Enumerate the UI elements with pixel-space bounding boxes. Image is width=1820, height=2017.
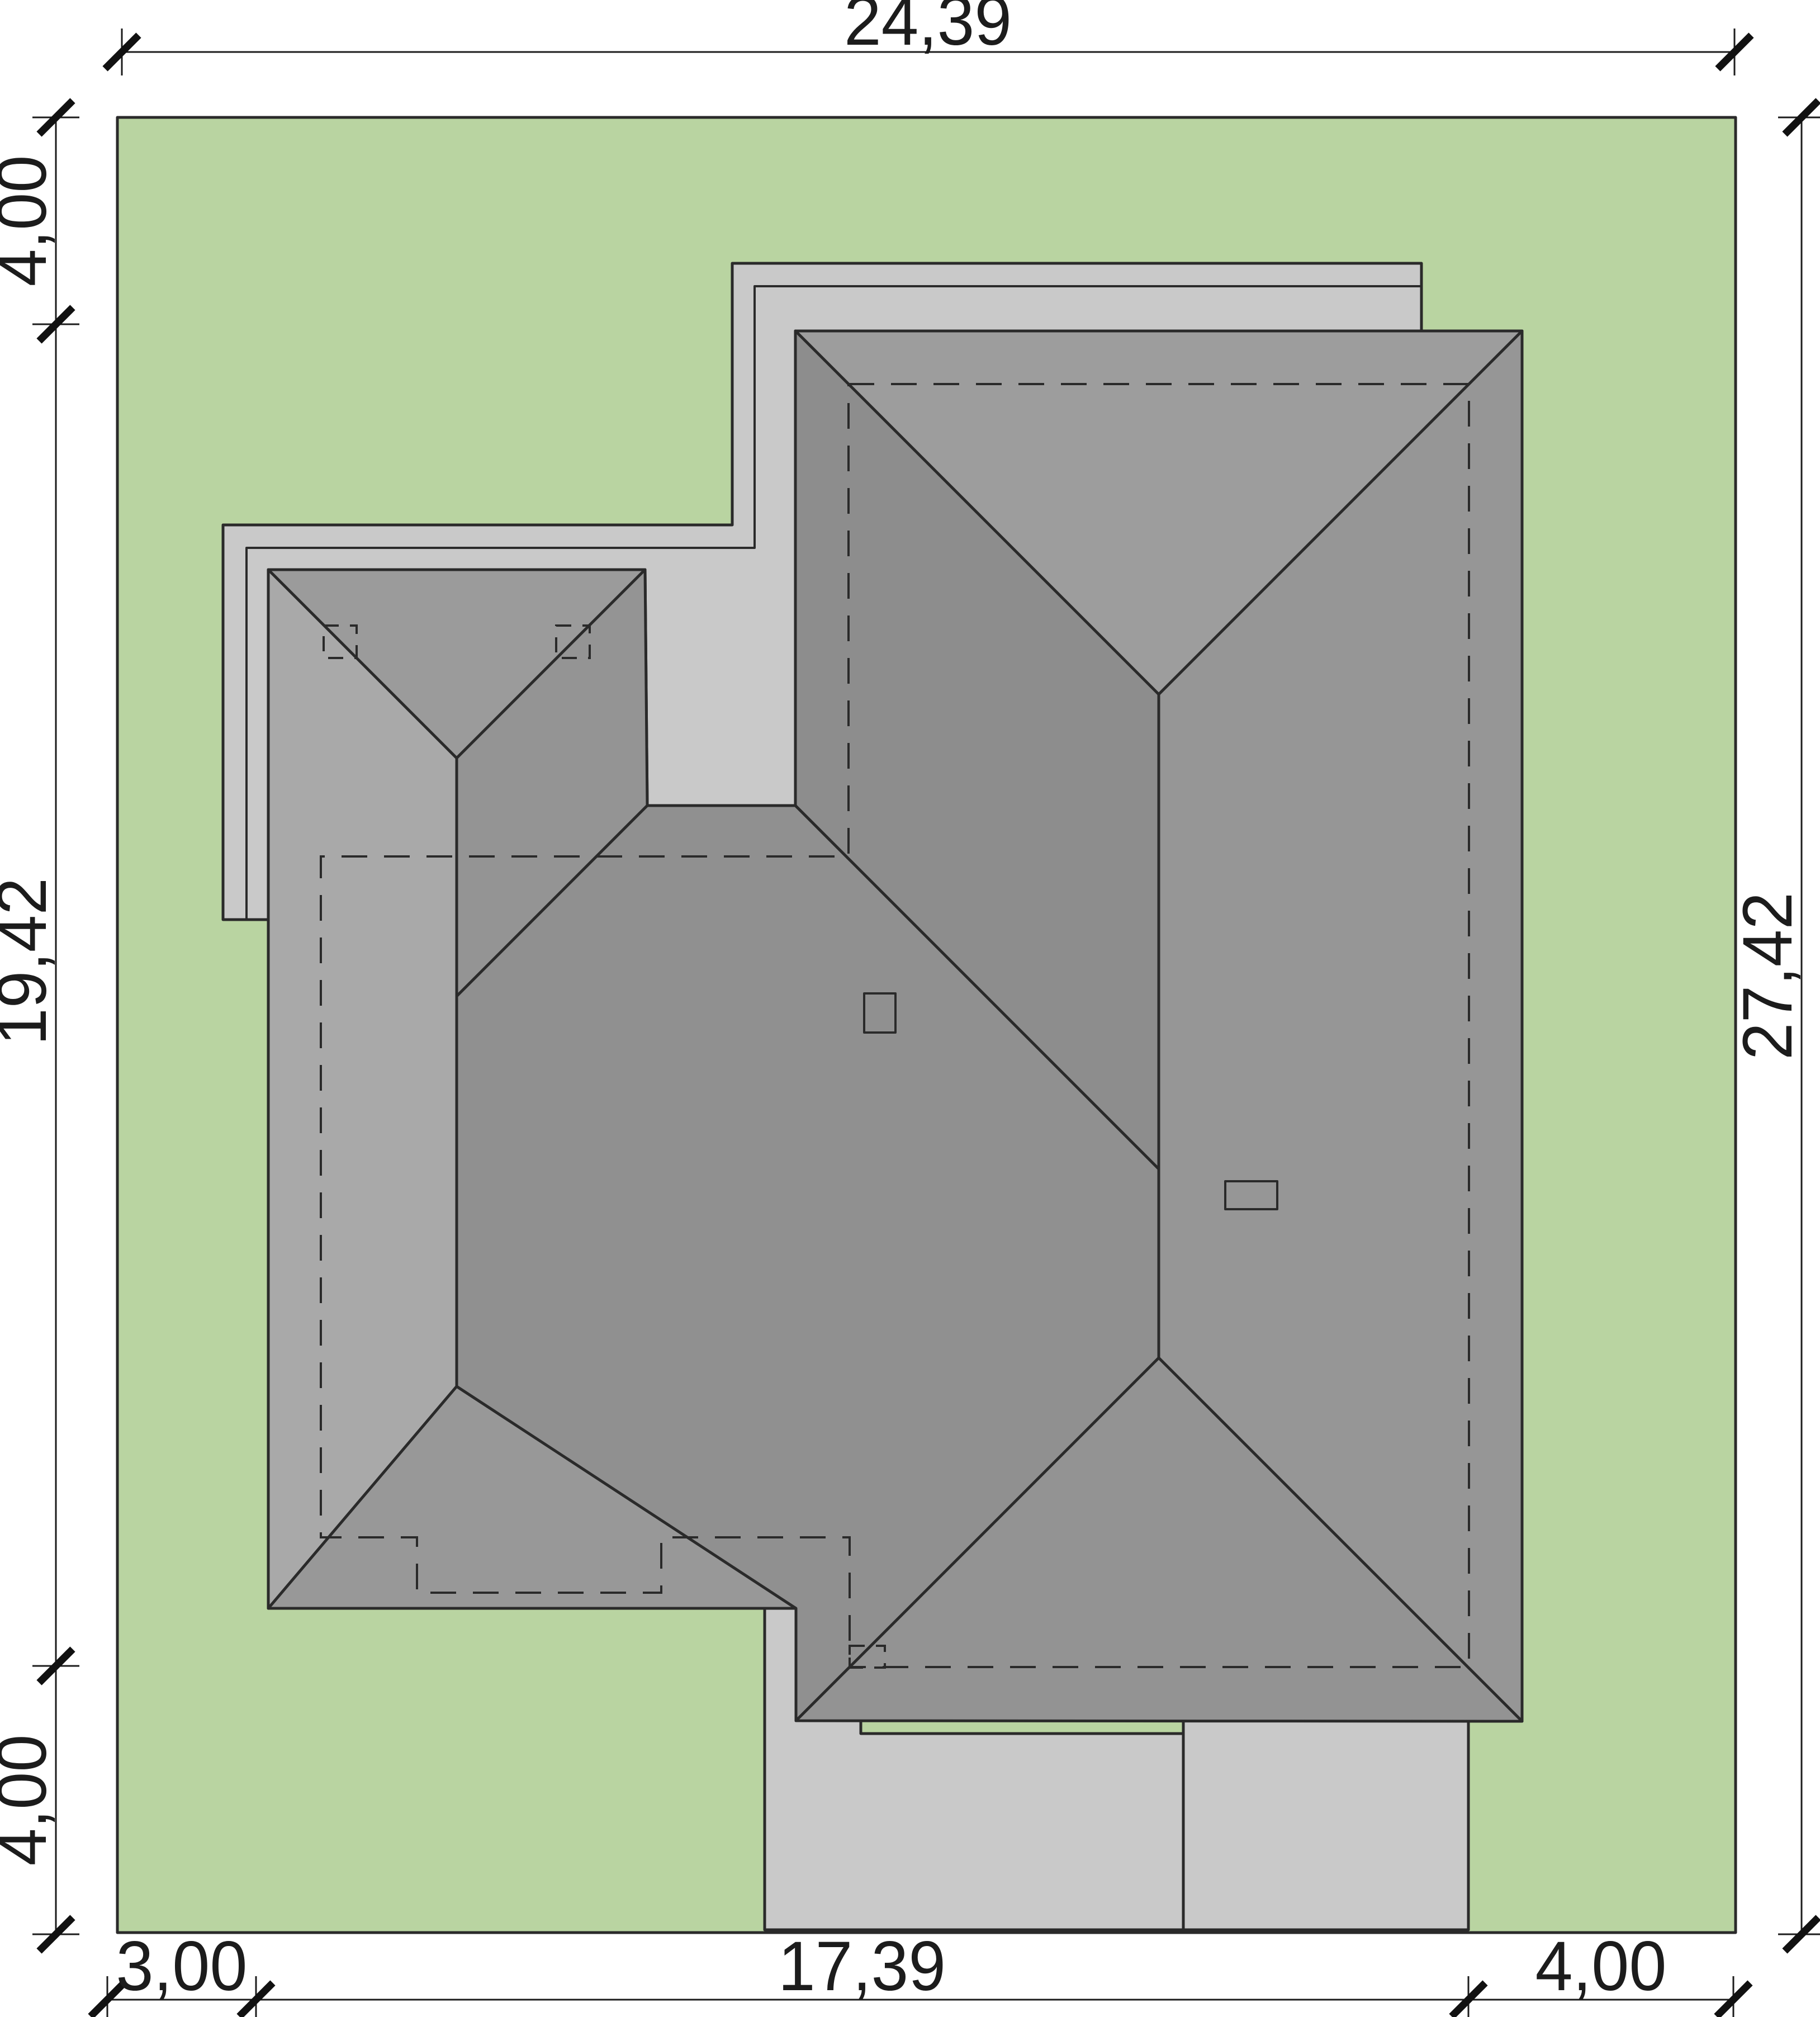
dim-label-left-house-depth: 19,42 [0,878,61,1045]
dimension-tick [1717,1976,1750,2017]
dimension-right: 27,42 [1729,101,1820,1951]
dim-label-bottom-house-width: 17,39 [778,1928,946,2005]
dim-label-bottom-setback-left: 3,00 [116,1928,248,2005]
dim-label-right-plot-depth: 27,42 [1729,892,1807,1060]
dimension-left: 4,00 19,42 4,00 [0,101,79,1951]
dimension-tick [1778,1917,1820,1951]
dimension-top: 24,39 [105,0,1751,75]
dimension-bottom: 3,00 17,39 4,00 [91,1928,1750,2017]
site-plan-drawing: 24,39 4,00 19,42 4,00 27,42 3,00 17,39 4… [0,0,1820,2017]
dimension-tick [1778,101,1820,134]
dim-label-bottom-setback-right: 4,00 [1535,1928,1667,2005]
dim-label-left-setback-bottom: 4,00 [0,1735,61,1866]
dimension-tick [1452,1976,1485,2017]
driveway [1183,1721,1468,1930]
dim-label-top-width: 24,39 [844,0,1012,60]
dim-label-left-setback-top: 4,00 [0,155,61,287]
site-plan-page: 24,39 4,00 19,42 4,00 27,42 3,00 17,39 4… [0,0,1820,2017]
